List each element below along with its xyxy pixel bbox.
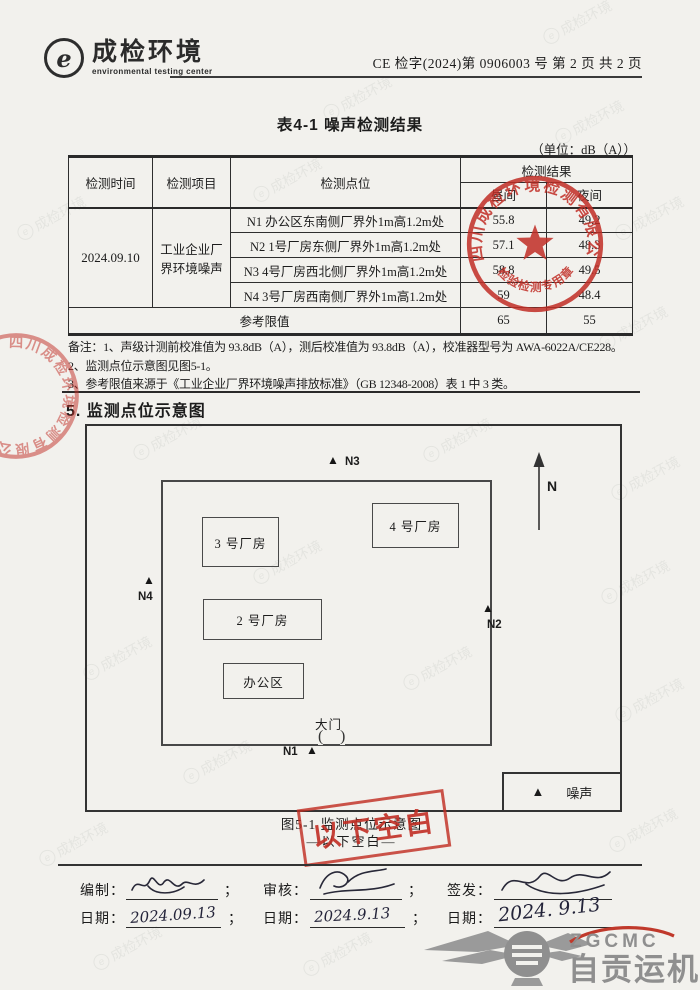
notes-block: 备注：1、声级计测前校准值为 93.8dB（A），测后校准值为 93.8dB（A… <box>68 338 643 394</box>
logo-title: 成检环境 <box>92 40 213 65</box>
notes-rule <box>62 391 640 393</box>
cell-point: N2 1号厂房东侧厂界外1m高1.2m处 <box>231 233 461 258</box>
legend-box: ▲ 噪声 <box>502 772 620 810</box>
date-underline <box>310 927 405 928</box>
signature-underline <box>126 899 218 900</box>
separator: ； <box>408 880 423 900</box>
building-box: 办公区 <box>223 663 304 699</box>
noise-point-icon: ▲ <box>143 574 155 586</box>
compiler-signature <box>128 872 214 898</box>
date-underline <box>126 927 221 928</box>
note-line: 2、监测点位示意图见图5-1。 <box>68 357 643 376</box>
limit-label: 参考限值 <box>69 308 461 335</box>
hoist-drum-icon <box>504 931 550 986</box>
footer-logo-name: 自贡运机 <box>568 952 700 987</box>
building-box: 4 号厂房 <box>372 503 459 548</box>
gate-mark-icon: ( <box>318 729 323 745</box>
col-header-point: 检测点位 <box>231 157 461 208</box>
header-rule <box>170 76 642 78</box>
review-label: 审核： <box>263 880 308 900</box>
seal-bottom-text: 检验检测专用章 <box>0 352 3 426</box>
footer-logo: ZGCMC 自贡运机 <box>420 920 700 990</box>
separator: ； <box>228 908 243 928</box>
review-date: 2024.9.13 <box>314 904 391 926</box>
site-diagram: N 3 号厂房 4 号厂房 2 号厂房 办公区 ▲ N3 ▲ N4 ▲ N2 ▲… <box>85 424 622 812</box>
noise-point-label: N3 <box>345 456 360 468</box>
separator: ； <box>224 880 239 900</box>
gate-mark-icon: ) <box>340 729 345 745</box>
watermark: e成检环境 <box>90 922 166 975</box>
scanned-report-page: e成检环境 e成检环境 e成检环境 e成检环境 e成检环境 e成检环境 e成检环… <box>0 0 700 990</box>
watermark: e成检环境 <box>540 0 616 48</box>
north-label: N <box>547 478 557 494</box>
legend-label: 噪声 <box>566 783 592 802</box>
logo-e-icon: e <box>44 38 84 78</box>
compile-label: 编制： <box>80 880 125 900</box>
company-seal: 四川成检环境检测有限公司 检验检测专用章 <box>463 172 607 316</box>
issue-label: 签发： <box>447 880 492 900</box>
noise-point-icon: ▲ <box>306 744 318 756</box>
cell-point: N4 3号厂房西南侧厂界外1m高1.2m处 <box>231 283 461 308</box>
legend-marker-icon: ▲ <box>532 784 545 800</box>
watermark: e成检环境 <box>300 928 376 981</box>
date-label: 日期： <box>80 908 125 928</box>
noise-point-icon: ▲ <box>327 454 339 466</box>
noise-point-icon: ▲ <box>482 602 494 614</box>
seal-star-icon <box>516 224 553 259</box>
col-header-item: 检测项目 <box>153 157 231 208</box>
table-title: 表4-1 噪声检测结果 <box>0 113 700 135</box>
noise-point-label: N4 <box>138 591 153 603</box>
doc-number: CE 检字(2024)第 0906003 号 第 2 页 共 2 页 <box>373 52 642 72</box>
col-header-time: 检测时间 <box>69 157 153 208</box>
cell-point: N3 4号厂房西北侧厂界外1m高1.2m处 <box>231 258 461 283</box>
cell-time: 2024.09.10 <box>69 208 153 308</box>
company-logo: e 成检环境 environmental testing center <box>44 38 213 78</box>
noise-point-label: N2 <box>487 619 502 631</box>
compile-date: 2024.09.13 <box>129 903 216 927</box>
signature-underline <box>310 899 402 900</box>
watermark: e成检环境 <box>612 674 688 727</box>
building-box: 2 号厂房 <box>203 599 322 640</box>
building-box: 3 号厂房 <box>202 517 279 567</box>
svg-text:检验检测专用章: 检验检测专用章 <box>0 352 3 426</box>
cell-point: N1 办公区东南侧厂界外1m高1.2m处 <box>231 208 461 233</box>
date-label: 日期： <box>263 908 308 928</box>
note-line: 备注：1、声级计测前校准值为 93.8dB（A），测后校准值为 93.8dB（A… <box>68 338 643 357</box>
seal-bottom-text: 检验检测专用章 <box>495 263 577 294</box>
noise-point-label: N1 <box>283 746 298 758</box>
cell-item: 工业企业厂界环境噪声 <box>153 208 231 308</box>
footer-logo-abbr: ZGCMC <box>570 931 660 952</box>
logo-subtitle: environmental testing center <box>92 68 213 76</box>
reviewer-signature <box>312 866 400 898</box>
svg-text:检验检测专用章: 检验检测专用章 <box>495 263 577 294</box>
